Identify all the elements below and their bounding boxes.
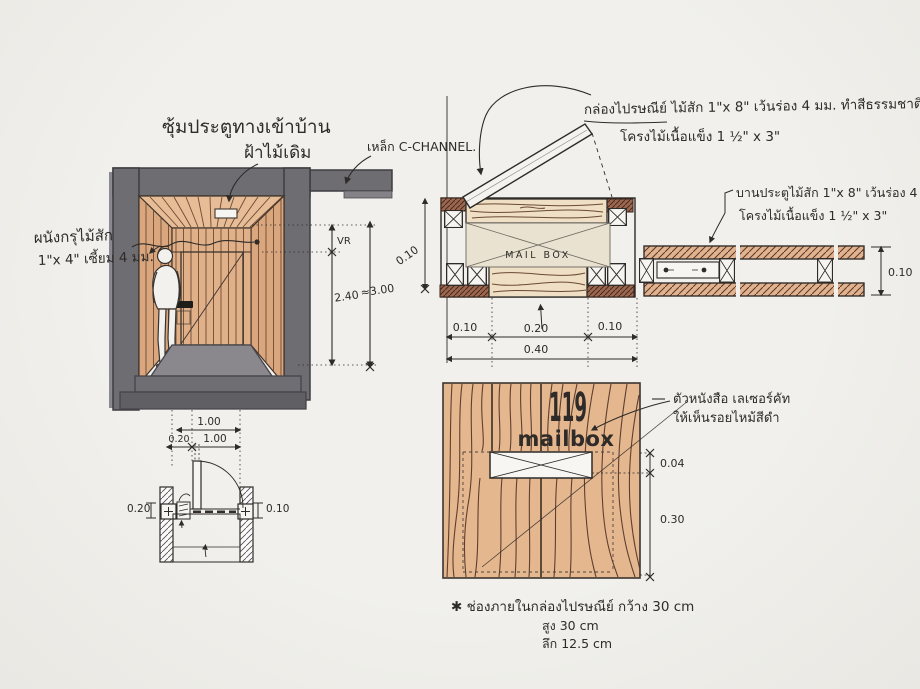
mail-flap-board xyxy=(463,124,592,208)
house-number: 119 xyxy=(549,385,587,431)
architectural-sketch: VR 2.40 ≈3.00 1.00 0.20 1.00 0.20 xyxy=(0,0,920,689)
ceiling-vent xyxy=(215,209,237,218)
laser-annotation: ตัวหนังสือ เลเซอร์คัท ให้เห็นรอยไหม้สีดำ xyxy=(652,391,790,426)
back-wall xyxy=(172,228,251,345)
dim-vr: VR xyxy=(337,236,351,247)
dim-wall-thickness: 0.10 xyxy=(888,266,913,279)
spec-bracket xyxy=(725,190,733,213)
plan-wall-left xyxy=(160,487,173,562)
dim-opening: 1.00 xyxy=(203,433,226,445)
mailbox-void: MAIL BOX xyxy=(466,223,610,267)
mailbox-word: mailbox xyxy=(518,427,615,451)
dim-plan-right-wall: 0.10 xyxy=(266,503,289,515)
dim-door-height: 2.40 xyxy=(333,288,359,304)
wall-section: 0.10 xyxy=(640,244,913,298)
note-line-2: สูง 30 cm xyxy=(542,618,599,634)
wood-stud-section xyxy=(445,211,463,228)
frame-left xyxy=(113,168,139,410)
dim-total-height: ≈3.00 xyxy=(360,282,395,300)
door-handle xyxy=(176,301,193,308)
laser-label-2: ให้เห็นรอยไหม้สีดำ xyxy=(673,408,780,426)
frame-right xyxy=(284,168,310,400)
frame-top xyxy=(113,168,310,196)
wall-thickness-dim: 0.10 xyxy=(871,247,913,295)
door-spec-annotation: บานประตูไม้สัก 1"x 8" เว้นร่อง 4 มม. ทำส… xyxy=(710,185,920,242)
spec-underline xyxy=(584,121,667,123)
door-spec-1: บานประตูไม้สัก 1"x 8" เว้นร่อง 4 มม. ทำส… xyxy=(736,185,920,201)
door-sill xyxy=(190,509,240,514)
dim-box-seg-right: 0.10 xyxy=(598,320,623,333)
c-channel-label: เหล็ก C-CHANNEL. xyxy=(367,139,476,154)
sketch-canvas: VR 2.40 ≈3.00 1.00 0.20 1.00 0.20 xyxy=(0,0,920,689)
wood-stud-section xyxy=(609,209,627,226)
porch-outline xyxy=(173,514,240,562)
dim-opening-top: 1.00 xyxy=(197,416,220,428)
dim-box-depth: 0.10 xyxy=(393,243,421,268)
door-swing-arc xyxy=(197,461,243,508)
latch-plate xyxy=(657,262,719,278)
drawing-title: ซุ้มประตูทางเข้าบ้าน xyxy=(162,116,331,139)
dim-wall-left: 0.20 xyxy=(168,434,189,445)
mailbox-plan-section: MAIL BOX xyxy=(440,198,635,297)
mailbox-plan-label: MAIL BOX xyxy=(505,250,571,261)
dim-slot-offset: 0.30 xyxy=(660,513,685,526)
mailbox-spec-2: โครงไม้เนื้อแข็ง 1 ½" x 3" xyxy=(620,126,780,145)
wood-stud-section xyxy=(640,259,654,283)
mailbox-spec-annotation: กล่องไปรษณีย์ ไม้สัก 1"x 8" เว้นร่อง 4 ม… xyxy=(584,95,920,145)
wall-label-2: 1"x 4" เซี้ยม 4 มม. xyxy=(37,246,154,269)
mail-slot xyxy=(490,452,592,478)
door-plan-view: 0.20 0.10 xyxy=(127,444,289,562)
plan-door-leaf-open xyxy=(193,461,201,509)
dim-box-seg-left: 0.10 xyxy=(453,321,478,334)
ceiling-label: ฝ้าไม้เดิม xyxy=(244,142,311,163)
flap-projection-line xyxy=(592,133,612,197)
dim-box-seg-mid: 0.20 xyxy=(524,322,549,335)
door-spec-leader xyxy=(710,213,725,242)
dim-box-total: 0.40 xyxy=(524,343,549,356)
note-line-1: ✱ ช่องภายในกล่องไปรษณีย์ กว้าง 30 cm xyxy=(451,598,694,615)
wall-label-1: ผนังกรุไม้สัก xyxy=(34,226,114,248)
mailbox-front-elevation: 119 mailbox 0.04 0.30 xyxy=(443,383,688,581)
mailbox-spec-1: กล่องไปรษณีย์ ไม้สัก 1"x 8" เว้นร่อง 4 ม… xyxy=(584,95,920,118)
c-channel-flange xyxy=(344,191,392,198)
door-pivot-detail xyxy=(177,494,190,528)
note-line-3: ลึก 12.5 cm xyxy=(542,636,612,651)
wood-stud-section xyxy=(720,259,735,283)
elevation-width-dims: 1.00 0.20 1.00 xyxy=(167,410,240,502)
dim-slot-height: 0.04 xyxy=(660,457,685,470)
dim-plan-left-wall: 0.20 xyxy=(127,503,150,515)
laser-label-1: ตัวหนังสือ เลเซอร์คัท xyxy=(673,391,790,407)
wood-stud-section xyxy=(447,264,464,286)
door-spec-2: โครงไม้เนื้อแข็ง 1 ½" x 3" xyxy=(739,206,887,223)
wood-stud-section xyxy=(818,259,833,283)
note-annotation: ✱ ช่องภายในกล่องไปรษณีย์ กว้าง 30 cm สูง… xyxy=(451,598,694,651)
